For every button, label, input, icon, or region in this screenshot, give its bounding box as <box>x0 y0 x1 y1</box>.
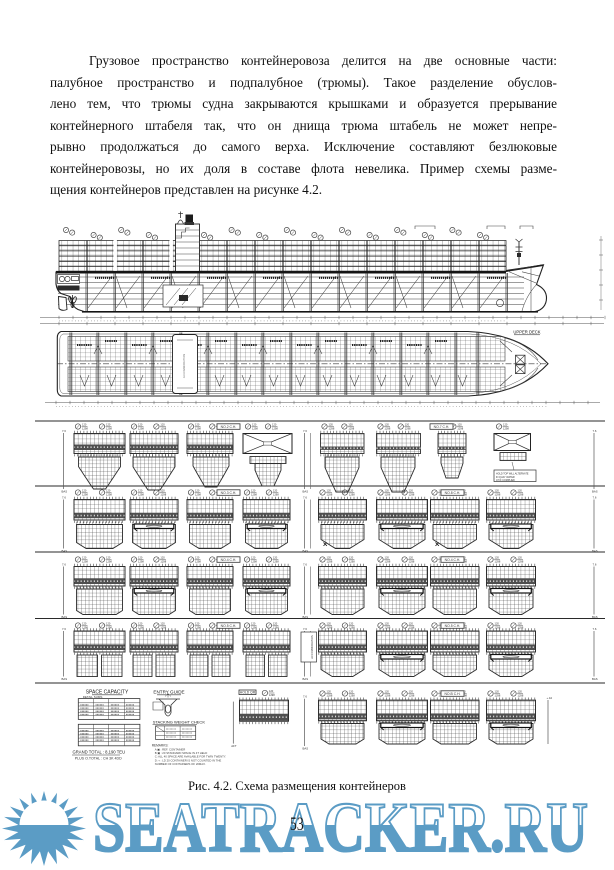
svg-text:7.6: 7.6 <box>593 495 597 499</box>
svg-text:1298: 1298 <box>409 694 415 698</box>
svg-text:1298: 1298 <box>503 427 509 431</box>
svg-text:1298: 1298 <box>195 493 201 497</box>
svg-text:120: 120 <box>251 489 256 493</box>
svg-text:7.6: 7.6 <box>593 429 597 433</box>
svg-text:NO.4 C.H.: NO.4 C.H. <box>445 558 461 562</box>
svg-text:1298: 1298 <box>329 427 335 431</box>
svg-text:120: 120 <box>138 423 143 427</box>
svg-text:120: 120 <box>251 556 256 560</box>
svg-text:120: 120 <box>82 489 87 493</box>
svg-text:120: 120 <box>518 489 523 493</box>
svg-text:120: 120 <box>329 423 334 427</box>
svg-text:120: 120 <box>106 622 111 626</box>
svg-text:1298: 1298 <box>518 493 524 497</box>
svg-text:120: 120 <box>327 489 332 493</box>
svg-text:120: 120 <box>160 556 165 560</box>
svg-text:7.6: 7.6 <box>62 627 66 631</box>
svg-text:BAS: BAS <box>303 489 309 493</box>
svg-text:1298: 1298 <box>195 427 201 431</box>
svg-text:120: 120 <box>495 556 500 560</box>
svg-text:ENTRY GUIDE: ENTRY GUIDE <box>153 690 184 695</box>
svg-text:1298: 1298 <box>106 626 112 630</box>
svg-text:1298: 1298 <box>138 493 144 497</box>
svg-text:120: 120 <box>457 423 462 427</box>
svg-text:1298: 1298 <box>327 694 333 698</box>
svg-text:1298: 1298 <box>385 427 391 431</box>
svg-text:1298: 1298 <box>457 427 463 431</box>
svg-text:120: 120 <box>273 489 278 493</box>
svg-text:7.6: 7.6 <box>303 562 307 566</box>
svg-text:BAS: BAS <box>303 549 309 553</box>
svg-text:NO.7 C.H.: NO.7 C.H. <box>434 425 450 429</box>
svg-text:AT IF COMPLIED: AT IF COMPLIED <box>496 479 515 482</box>
svg-text:120: 120 <box>160 622 165 626</box>
svg-text:120: 120 <box>349 489 354 493</box>
svg-text:120: 120 <box>82 423 87 427</box>
svg-text:1298: 1298 <box>385 560 391 564</box>
svg-text:BAS: BAS <box>592 549 598 553</box>
svg-text:7.6: 7.6 <box>303 627 307 631</box>
svg-text:STACKING WEIGHT CHECK: STACKING WEIGHT CHECK <box>153 719 206 724</box>
svg-text:120: 120 <box>409 556 414 560</box>
svg-text:1298: 1298 <box>348 427 354 431</box>
svg-text:120: 120 <box>138 556 143 560</box>
svg-text:120: 120 <box>82 622 87 626</box>
svg-text:1298: 1298 <box>106 560 112 564</box>
svg-text:120: 120 <box>252 423 257 427</box>
svg-text:120: 120 <box>269 689 274 693</box>
svg-text:1298: 1298 <box>252 427 258 431</box>
svg-text:1298: 1298 <box>269 693 275 697</box>
svg-text:1298: 1298 <box>251 560 257 564</box>
svg-text:BAS: BAS <box>62 549 68 553</box>
svg-text:1298: 1298 <box>495 694 501 698</box>
svg-text:120: 120 <box>518 690 523 694</box>
svg-text:120: 120 <box>106 556 111 560</box>
svg-text:1298: 1298 <box>273 493 279 497</box>
svg-text:1298: 1298 <box>273 560 279 564</box>
svg-text:HOLD QR: HOLD QR <box>240 691 256 695</box>
svg-text:1298: 1298 <box>160 493 166 497</box>
svg-text:1298: 1298 <box>106 427 112 431</box>
svg-text:1298: 1298 <box>160 427 166 431</box>
svg-text:120: 120 <box>409 622 414 626</box>
svg-text:PLUS O.TOTAL : CH 3K 4DD: PLUS O.TOTAL : CH 3K 4DD <box>75 756 122 760</box>
svg-text:120: 120 <box>272 423 277 427</box>
svg-text:UPPER DECK: UPPER DECK <box>513 330 540 335</box>
svg-text:1298: 1298 <box>385 694 391 698</box>
svg-text:BAS: BAS <box>592 489 598 493</box>
svg-text:7.6: 7.6 <box>303 429 307 433</box>
svg-text:1298: 1298 <box>495 493 501 497</box>
svg-text:1298: 1298 <box>405 427 411 431</box>
svg-text:1298: 1298 <box>518 560 524 564</box>
svg-text:1298: 1298 <box>82 427 88 431</box>
svg-text:7.6: 7.6 <box>62 495 66 499</box>
svg-text:1298: 1298 <box>138 427 144 431</box>
svg-text:7.6: 7.6 <box>62 429 66 433</box>
svg-text:120: 120 <box>106 423 111 427</box>
svg-text:1298: 1298 <box>160 560 166 564</box>
svg-text:AFT: AFT <box>231 744 237 748</box>
svg-text:120: 120 <box>195 556 200 560</box>
svg-text:+.42: +.42 <box>547 696 553 700</box>
svg-text:120: 120 <box>327 556 332 560</box>
svg-text:1298: 1298 <box>106 493 112 497</box>
svg-text:1298: 1298 <box>495 560 501 564</box>
svg-text:120: 120 <box>138 489 143 493</box>
svg-text:120: 120 <box>251 622 256 626</box>
svg-text:NO.4 C.H.: NO.4 C.H. <box>221 558 237 562</box>
svg-text:120: 120 <box>160 423 165 427</box>
svg-text:1298: 1298 <box>349 694 355 698</box>
svg-text:7.6: 7.6 <box>303 495 307 499</box>
svg-text:120: 120 <box>495 622 500 626</box>
svg-text:1298: 1298 <box>349 493 355 497</box>
svg-text:7.6: 7.6 <box>593 562 597 566</box>
svg-text:BAS: BAS <box>592 677 598 681</box>
svg-text:1298: 1298 <box>409 493 415 497</box>
svg-text:120: 120 <box>273 622 278 626</box>
svg-text:1298: 1298 <box>138 560 144 564</box>
svg-text:BAS: BAS <box>303 677 309 681</box>
svg-text:7.6: 7.6 <box>62 562 66 566</box>
svg-text:120: 120 <box>349 622 354 626</box>
svg-text:NO.5 C.H.: NO.5 C.H. <box>445 624 461 628</box>
svg-text:120: 120 <box>495 489 500 493</box>
svg-text:120: 120 <box>503 423 508 427</box>
svg-text:7.6: 7.6 <box>593 627 597 631</box>
svg-text:120: 120 <box>327 622 332 626</box>
svg-text:NO.B C.H.: NO.B C.H. <box>444 692 460 696</box>
svg-text:120: 120 <box>385 622 390 626</box>
svg-text:1298: 1298 <box>82 560 88 564</box>
svg-text:1298: 1298 <box>349 560 355 564</box>
svg-text:BAS: BAS <box>303 746 309 750</box>
svg-text:1298: 1298 <box>518 694 524 698</box>
svg-text:1298: 1298 <box>82 493 88 497</box>
svg-text:NO.8 C.H.: NO.8 C.H. <box>445 491 461 495</box>
svg-text:1298: 1298 <box>518 626 524 630</box>
svg-text:120: 120 <box>385 690 390 694</box>
svg-text:NO.2 C.H.: NO.2 C.H. <box>221 425 237 429</box>
svg-text:120: 120 <box>409 690 414 694</box>
svg-text:BAS: BAS <box>303 615 309 619</box>
svg-text:120: 120 <box>385 556 390 560</box>
svg-text:NO.3 C.H.: NO.3 C.H. <box>221 491 237 495</box>
svg-text:NO.5 C.H.: NO.5 C.H. <box>221 624 237 628</box>
svg-text:1298: 1298 <box>195 560 201 564</box>
svg-text:120: 120 <box>385 423 390 427</box>
svg-text:120: 120 <box>160 489 165 493</box>
svg-text:1298: 1298 <box>272 427 278 431</box>
svg-text:120: 120 <box>82 556 87 560</box>
svg-text:120: 120 <box>518 556 523 560</box>
svg-text:1298: 1298 <box>409 560 415 564</box>
svg-text:BAS: BAS <box>592 615 598 619</box>
svg-text:120: 120 <box>349 556 354 560</box>
svg-text:120: 120 <box>349 690 354 694</box>
svg-text:120: 120 <box>409 489 414 493</box>
svg-text:BAS: BAS <box>62 489 68 493</box>
svg-text:120: 120 <box>106 489 111 493</box>
svg-text:1298: 1298 <box>251 493 257 497</box>
svg-text:120: 120 <box>195 423 200 427</box>
svg-text:120: 120 <box>273 556 278 560</box>
svg-text:120: 120 <box>195 622 200 626</box>
svg-text:SEATRACKER.RU: SEATRACKER.RU <box>93 789 588 867</box>
svg-text:120: 120 <box>495 690 500 694</box>
svg-text:NUMBER OF CONTAINERS OF 20MAX.: NUMBER OF CONTAINERS OF 20MAX. <box>155 762 206 766</box>
svg-text:120: 120 <box>385 489 390 493</box>
svg-text:120: 120 <box>405 423 410 427</box>
svg-text:ACCOMMODATION: ACCOMMODATION <box>310 635 314 659</box>
svg-text:7.6: 7.6 <box>303 695 307 699</box>
svg-text:120: 120 <box>195 489 200 493</box>
svg-text:1298: 1298 <box>385 493 391 497</box>
svg-text:120: 120 <box>518 622 523 626</box>
svg-text:120: 120 <box>348 423 353 427</box>
svg-text:120: 120 <box>138 622 143 626</box>
svg-text:BAS: BAS <box>62 615 68 619</box>
svg-text:1298: 1298 <box>327 493 333 497</box>
svg-text:BAS: BAS <box>62 677 68 681</box>
svg-text:GRAND TOTAL : 8,190 TEU: GRAND TOTAL : 8,190 TEU <box>73 750 126 755</box>
svg-text:1298: 1298 <box>327 560 333 564</box>
svg-text:120: 120 <box>327 690 332 694</box>
svg-text:ACCOMMODATION: ACCOMMODATION <box>182 354 186 378</box>
